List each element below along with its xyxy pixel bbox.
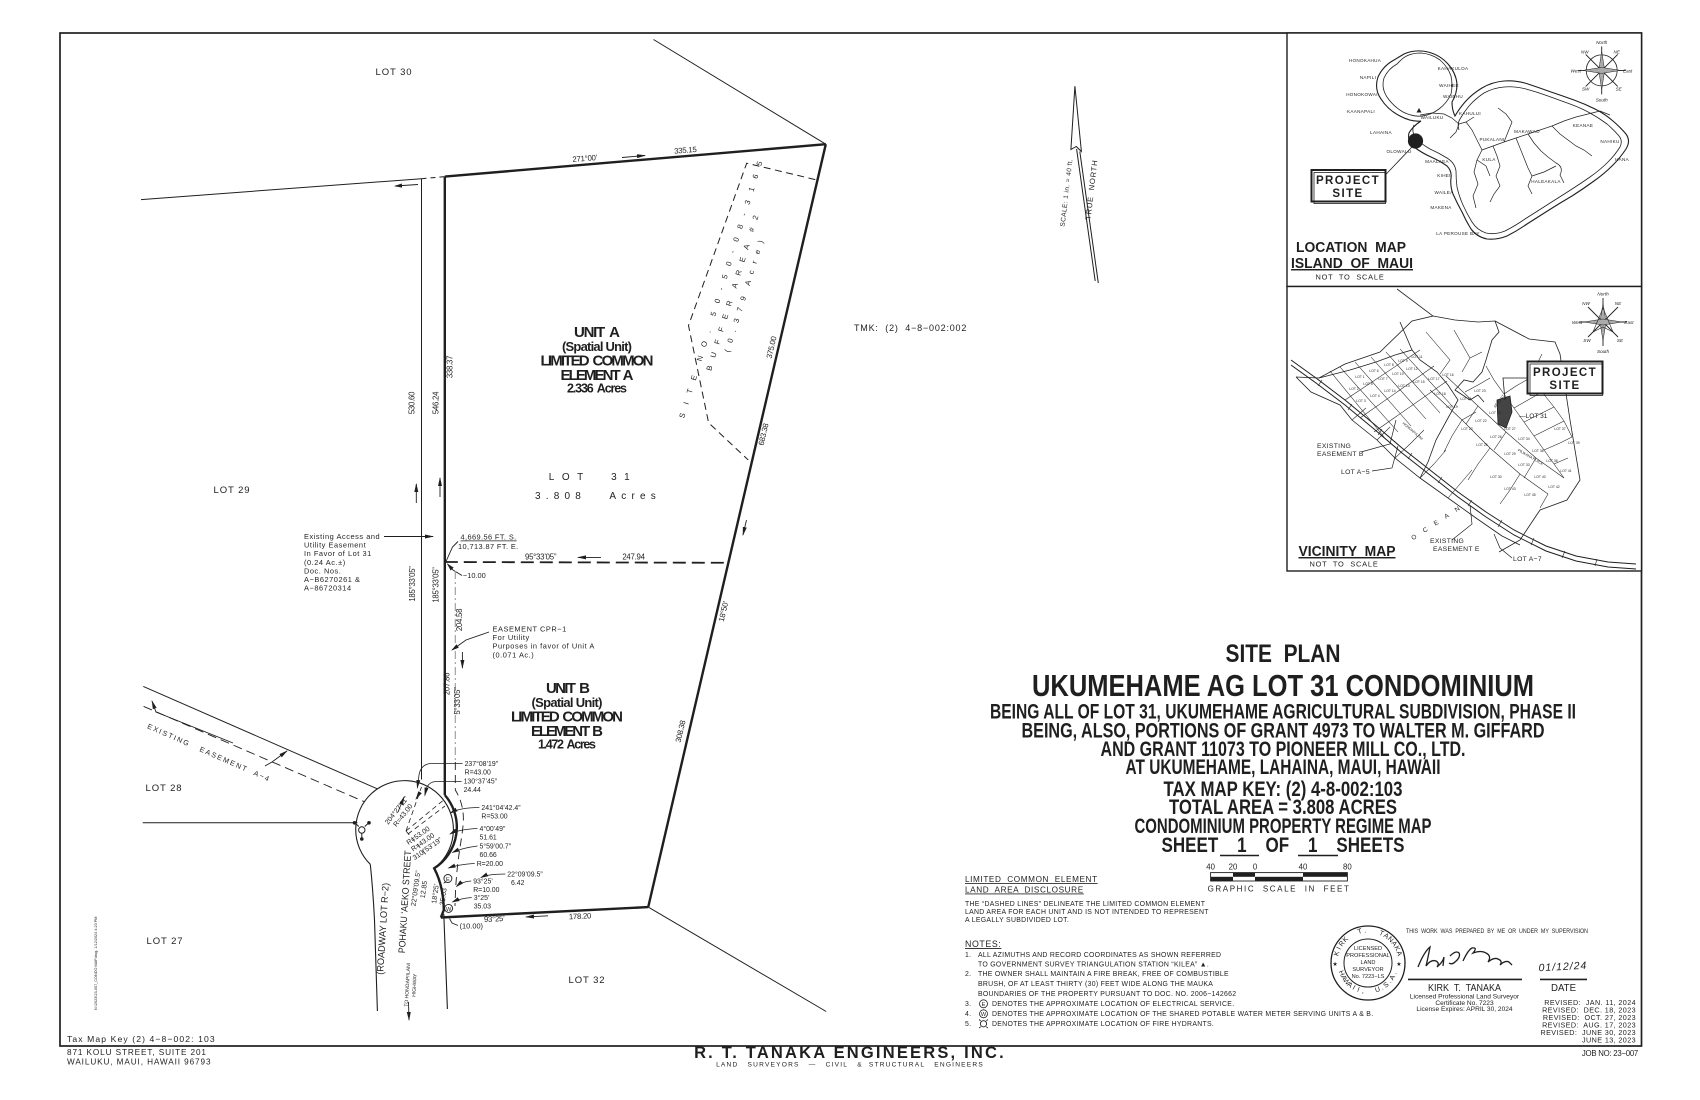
svg-text:271°00’: 271°00’	[572, 153, 598, 164]
svg-text:LOT 12: LOT 12	[1406, 367, 1417, 371]
svg-text:DATE: DATE	[1551, 983, 1576, 994]
svg-text:NAHIKU: NAHIKU	[1600, 139, 1619, 144]
svg-text:LOT 23: LOT 23	[1474, 389, 1485, 393]
svg-text:Tax Map Key (2) 4−8−002: 103: Tax Map Key (2) 4−8−002: 103	[67, 1034, 216, 1044]
svg-text:3°25’: 3°25’	[474, 894, 490, 902]
svg-text:2.336 Acres: 2.336 Acres	[567, 382, 627, 396]
svg-text:E: E	[982, 1002, 986, 1008]
svg-text:LOT 11: LOT 11	[1412, 355, 1423, 359]
svg-text:SITE PLAN: SITE PLAN	[1226, 640, 1341, 668]
svg-text:ISLAND OF MAUI: ISLAND OF MAUI	[1291, 256, 1413, 272]
svg-text:WAILEA: WAILEA	[1435, 190, 1455, 195]
svg-text:North: North	[1596, 40, 1608, 45]
svg-text:207.86: 207.86	[442, 673, 451, 695]
svg-text:LOT 24: LOT 24	[1489, 411, 1500, 415]
svg-text:HANA: HANA	[1615, 157, 1630, 162]
svg-text:A: A	[1395, 950, 1403, 957]
svg-text:LOT 22: LOT 22	[1475, 419, 1486, 423]
svg-text:LOT 45: LOT 45	[1524, 493, 1535, 497]
svg-text:LOCATION MAP: LOCATION MAP	[1296, 240, 1406, 256]
svg-text:LOT A−7: LOT A−7	[1513, 556, 1542, 563]
svg-text:683.38: 683.38	[757, 423, 771, 447]
svg-text:PROJECT: PROJECT	[1533, 367, 1597, 379]
svg-text:546.24: 546.24	[432, 391, 441, 414]
svg-text:A LEGALLY SUBDIVIDED LOT.: A LEGALLY SUBDIVIDED LOT.	[965, 917, 1069, 924]
svg-text:LOT 37: LOT 37	[1554, 427, 1565, 431]
svg-text:DENOTES THE APPROXIMATE LOCATI: DENOTES THE APPROXIMATE LOCATION OF THE …	[992, 1011, 1373, 1018]
svg-text:HIGHWAY: HIGHWAY	[411, 973, 418, 997]
svg-text:40: 40	[1206, 863, 1215, 872]
svg-text:KEANAE: KEANAE	[1573, 123, 1593, 128]
svg-text:LIMITED COMMON ELEMENT: LIMITED COMMON ELEMENT	[965, 875, 1098, 884]
svg-text:LOT 39: LOT 39	[1568, 441, 1579, 445]
svg-text:51.61: 51.61	[480, 835, 497, 842]
svg-text:LOT 17: LOT 17	[1428, 377, 1439, 381]
svg-text:N:\2023\23-007_CONDO MAP.dwg,: N:\2023\23-007_CONDO MAP.dwg, 1/12/2024 …	[94, 917, 98, 1010]
svg-text:LOT 7: LOT 7	[1378, 377, 1387, 381]
svg-text:WAILUKU, MAUI, HAWAII 96793: WAILUKU, MAUI, HAWAII 96793	[67, 1058, 211, 1067]
svg-text:LOT 5: LOT 5	[1363, 382, 1372, 386]
svg-text:LOT 2: LOT 2	[1349, 387, 1358, 391]
svg-text:12.85: 12.85	[420, 880, 429, 898]
svg-text:NW: NW	[1582, 301, 1590, 306]
svg-text:No. 7223−LS: No. 7223−LS	[1352, 974, 1385, 980]
svg-text:EXISTING EASEMENT A−4: EXISTING EASEMENT A−4	[146, 722, 272, 784]
svg-text:5.: 5.	[965, 1021, 971, 1028]
svg-text:MAKENA: MAKENA	[1430, 205, 1452, 210]
svg-text:(10.00): (10.00)	[460, 922, 483, 931]
svg-text:SURVEYOR: SURVEYOR	[1352, 967, 1383, 973]
svg-text:BRUSH, OF AT LEAST THIRTY (30): BRUSH, OF AT LEAST THIRTY (30) FEET WIDE…	[978, 981, 1213, 988]
svg-text:West: West	[1572, 320, 1583, 325]
svg-text:A−86720314: A−86720314	[304, 584, 352, 593]
svg-text:SCALE: 1 in. = 40 ft.: SCALE: 1 in. = 40 ft.	[1060, 158, 1075, 227]
svg-text:AT UKUMEHAME, LAHAINA, MAUI, H: AT UKUMEHAME, LAHAINA, MAUI, HAWAII	[1126, 756, 1441, 779]
svg-text:LOT 8: LOT 8	[1384, 363, 1393, 367]
svg-text:MAKAWAO: MAKAWAO	[1514, 129, 1540, 134]
svg-text:LAHAINA: LAHAINA	[1370, 130, 1392, 135]
svg-text:NOTES:: NOTES:	[965, 939, 1001, 949]
svg-text:PROJECT: PROJECT	[1316, 175, 1380, 187]
svg-text:North: North	[1597, 292, 1609, 297]
svg-text:LOT 20: LOT 20	[1461, 427, 1472, 431]
svg-text:EASEMENT B: EASEMENT B	[1317, 451, 1364, 458]
svg-text:LOT 16: LOT 16	[1442, 373, 1453, 377]
svg-text:W: W	[446, 907, 452, 913]
svg-text:5°59’00.7”: 5°59’00.7”	[480, 843, 512, 851]
svg-text:LOT 36: LOT 36	[1532, 449, 1543, 453]
svg-text:ALL AZIMUTHS AND RECORD COORDI: ALL AZIMUTHS AND RECORD COORDINATES AS S…	[978, 952, 1221, 959]
svg-text:South: South	[1597, 349, 1609, 354]
svg-text:NOT TO SCALE: NOT TO SCALE	[1309, 560, 1378, 569]
svg-text:LOT 13: LOT 13	[1398, 384, 1409, 388]
svg-text:LOT 41: LOT 41	[1560, 469, 1571, 473]
svg-text:EXISTING: EXISTING	[1317, 443, 1351, 450]
svg-text:SITE: SITE	[1332, 188, 1363, 200]
svg-text:01/12/24: 01/12/24	[1538, 960, 1587, 975]
svg-text:LA PEROUSE BAY: LA PEROUSE BAY	[1436, 231, 1479, 236]
svg-text:LOT 30: LOT 30	[376, 67, 413, 78]
svg-text:LOT A−5: LOT A−5	[1341, 469, 1370, 476]
svg-text:24.44: 24.44	[464, 787, 481, 794]
svg-text:★: ★	[1332, 961, 1337, 968]
svg-text:TRUE NORTH: TRUE NORTH	[1084, 159, 1100, 220]
svg-text:SHEET 1 OF 1 SHEET: SHEET 1 OF 1 SHEETS	[1162, 834, 1405, 857]
svg-text:LAND: LAND	[1361, 960, 1376, 966]
svg-text:40: 40	[1299, 863, 1308, 872]
svg-text:247.94: 247.94	[622, 553, 645, 562]
svg-text:22°09’09.5”: 22°09’09.5”	[507, 871, 543, 879]
svg-text:NE: NE	[1614, 49, 1621, 54]
svg-text:SE: SE	[1616, 86, 1623, 91]
svg-text:NAPILI: NAPILI	[1360, 75, 1376, 80]
svg-text:South: South	[1596, 97, 1608, 102]
svg-text:178.20: 178.20	[569, 911, 593, 921]
svg-text:JOB NO: 23−007: JOB NO: 23−007	[1582, 1049, 1638, 1058]
svg-text:(ROADWAY LOT R−2): (ROADWAY LOT R−2)	[375, 883, 392, 975]
svg-text:.: .	[1364, 928, 1367, 935]
svg-text:TMK: (2) 4−8−002:002: TMK: (2) 4−8−002:002	[854, 323, 967, 333]
svg-text:185°33’05”: 185°33’05”	[432, 567, 441, 603]
svg-text:LOT 1: LOT 1	[1355, 375, 1364, 379]
svg-text:S I T E N O . 5 0 - 5 0 - 0: S I T E N O . 5 0 - 5 0 - 0 8 - 3 1 6 5	[677, 157, 765, 420]
svg-text:THIS WORK WAS PREPARED BY: THIS WORK WAS PREPARED BY ME OR UNDER MY…	[1406, 928, 1588, 935]
svg-text:60.66: 60.66	[480, 852, 497, 859]
svg-text:SW: SW	[1583, 338, 1591, 343]
svg-text:KIRK T. TANAKA: KIRK T. TANAKA	[1428, 983, 1501, 994]
svg-text:R=20.00: R=20.00	[477, 861, 503, 868]
svg-text:West: West	[1571, 68, 1582, 73]
svg-text:East: East	[1623, 68, 1633, 73]
svg-text:95°33’05”: 95°33’05”	[525, 553, 557, 562]
svg-text:530.60: 530.60	[408, 391, 417, 414]
svg-text:LOT 6: LOT 6	[1369, 369, 1378, 373]
svg-text:NOT TO SCALE: NOT TO SCALE	[1315, 273, 1384, 282]
svg-text:871 KOLU STREET, SUITE 201: 871 KOLU STREET, SUITE 201	[67, 1048, 207, 1057]
svg-text:R=10.00: R=10.00	[473, 887, 499, 894]
svg-text:LOT 14: LOT 14	[1384, 389, 1395, 393]
svg-text:EASEMENT E: EASEMENT E	[1433, 546, 1480, 553]
svg-text:LOT 27: LOT 27	[1504, 427, 1515, 431]
svg-text:80: 80	[1343, 863, 1352, 872]
svg-text:SITE: SITE	[1549, 380, 1580, 392]
svg-text:East: East	[1624, 320, 1634, 325]
svg-text:HONOKAHUA: HONOKAHUA	[1349, 58, 1382, 63]
svg-text:R. T. TANAKA ENGINEERS, INC.: R. T. TANAKA ENGINEERS, INC.	[694, 1044, 1006, 1062]
svg-text:LOT 10: LOT 10	[1392, 372, 1403, 376]
svg-text:241°04’42.4”: 241°04’42.4”	[481, 804, 521, 812]
svg-text:WAILUKU: WAILUKU	[1421, 115, 1444, 120]
svg-text:UKUMEHAME AG LOT 31 CONDOMINIU: UKUMEHAME AG LOT 31 CONDOMINIUM	[1032, 668, 1534, 703]
svg-text:LAND AREA DISCLOSURE: LAND AREA DISCLOSURE	[965, 886, 1084, 895]
svg-text:LOT 29: LOT 29	[214, 485, 251, 496]
svg-text:NE: NE	[1615, 301, 1622, 306]
svg-text:LOT 26: LOT 26	[1490, 435, 1501, 439]
svg-text:LOT 30: LOT 30	[1490, 475, 1501, 479]
svg-text:35.03: 35.03	[439, 888, 448, 906]
svg-text:,: ,	[1361, 988, 1364, 995]
svg-text:338.37: 338.37	[445, 356, 454, 378]
svg-text:PROFESSIONAL: PROFESSIONAL	[1346, 953, 1390, 959]
svg-text:35.03: 35.03	[474, 904, 491, 911]
svg-text:2.: 2.	[965, 971, 971, 978]
svg-text:VICINITY MAP: VICINITY MAP	[1299, 544, 1396, 560]
svg-text:SE: SE	[1617, 338, 1624, 343]
svg-text:I: I	[1356, 987, 1360, 994]
svg-text:LOT 27: LOT 27	[147, 936, 184, 947]
svg-text:LOT 31: LOT 31	[549, 472, 637, 483]
svg-text:LOT 42: LOT 42	[1548, 485, 1559, 489]
svg-text:.: .	[1391, 971, 1398, 975]
svg-text:LOT 34: LOT 34	[1518, 437, 1529, 441]
svg-text:LOT 33: LOT 33	[1518, 463, 1529, 467]
svg-text:—LOT 31: —LOT 31	[1519, 413, 1548, 420]
svg-text:HALEAKALA: HALEAKALA	[1531, 179, 1561, 184]
svg-text:LOT 43: LOT 43	[1504, 487, 1515, 491]
svg-text:DENOTES THE APPROXIMATE LOCATI: DENOTES THE APPROXIMATE LOCATION OF FIRE…	[992, 1021, 1214, 1028]
svg-text:1.472 Acres: 1.472 Acres	[538, 738, 596, 752]
svg-text:NW: NW	[1581, 49, 1589, 54]
svg-text:BOUNDARIES OF THE PROPERTY PUR: BOUNDARIES OF THE PROPERTY PURSUANT TO D…	[978, 991, 1236, 998]
svg-text:4.: 4.	[965, 1011, 971, 1018]
svg-text:GRAPHIC SCALE IN FEET: GRAPHIC SCALE IN FEET	[1208, 885, 1351, 894]
svg-text:LOT 3: LOT 3	[1356, 399, 1365, 403]
svg-text:LOT 9: LOT 9	[1398, 359, 1407, 363]
svg-text:PUKALANI: PUKALANI	[1479, 137, 1504, 142]
svg-text:KAHULUI: KAHULUI	[1459, 111, 1481, 116]
svg-text:E: E	[446, 877, 450, 883]
svg-text:LOT 18: LOT 18	[1434, 392, 1445, 396]
svg-text:LICENSED: LICENSED	[1354, 946, 1382, 952]
svg-text:10,713.87 FT. E.: 10,713.87 FT. E.	[458, 542, 519, 551]
svg-text:T: T	[1357, 928, 1364, 936]
svg-text:LOT 25: LOT 25	[1476, 443, 1487, 447]
svg-text:EXISTING: EXISTING	[1430, 538, 1464, 545]
svg-text:LAND AREA FOR EACH UNIT AND IS: LAND AREA FOR EACH UNIT AND IS NOT INTEN…	[965, 909, 1209, 916]
svg-text:LOT 15: LOT 15	[1413, 380, 1424, 384]
svg-text:LOT 4: LOT 4	[1370, 394, 1379, 398]
svg-text:4,669.56 FT. S.: 4,669.56 FT. S.	[461, 533, 517, 542]
svg-text:THE “DASHED LINES” DELINEATE T: THE “DASHED LINES” DELINEATE THE LIMITED…	[965, 901, 1206, 908]
svg-text:3.808 Acres: 3.808 Acres	[535, 491, 661, 502]
svg-text:LOT 32: LOT 32	[569, 975, 606, 986]
svg-text:185°33’05”: 185°33’05”	[408, 566, 417, 602]
svg-text:93°25’: 93°25’	[484, 914, 506, 924]
svg-text:WAIHEE: WAIHEE	[1439, 83, 1459, 88]
svg-text:6.42: 6.42	[511, 880, 525, 887]
svg-text:MAALAEA: MAALAEA	[1425, 159, 1449, 164]
svg-text:License Expires: APRIL 30, 202: License Expires: APRIL 30, 2024	[1416, 1006, 1512, 1013]
svg-text:0: 0	[1253, 863, 1258, 872]
svg-text:JUNE 13, 2023: JUNE 13, 2023	[1582, 1036, 1636, 1045]
svg-text:THE OWNER SHALL MAINTAIN A FIR: THE OWNER SHALL MAINTAIN A FIRE BREAK, F…	[978, 971, 1229, 978]
svg-text:5°33’05”: 5°33’05”	[453, 687, 462, 715]
svg-text:KIHEI: KIHEI	[1437, 173, 1451, 178]
svg-text:20: 20	[1229, 863, 1238, 872]
svg-text:308.38: 308.38	[674, 720, 688, 744]
svg-text:SW: SW	[1582, 86, 1590, 91]
svg-text:HONOKOWAI: HONOKOWAI	[1346, 92, 1378, 97]
svg-text:LAND SURVEYORS — CIVIL: LAND SURVEYORS — CIVIL & STRUCTURAL ENGI…	[716, 1062, 984, 1069]
svg-text:KAHAKULOA: KAHAKULOA	[1438, 66, 1469, 71]
svg-text:(0.071 Ac.): (0.071 Ac.)	[493, 650, 535, 659]
svg-text:LOT 19: LOT 19	[1446, 405, 1457, 409]
svg-text:★: ★	[1396, 961, 1401, 968]
svg-text:130°37’45”: 130°37’45”	[464, 778, 498, 786]
svg-text:−10.00: −10.00	[463, 571, 486, 580]
svg-text:DENOTES THE APPROXIMATE LOCATI: DENOTES THE APPROXIMATE LOCATION OF ELEC…	[992, 1001, 1234, 1008]
svg-text:237°08’19”: 237°08’19”	[465, 760, 499, 768]
svg-text:TO GOVERNMENT SURVEY TRIANGULA: TO GOVERNMENT SURVEY TRIANGULATION STATI…	[978, 962, 1209, 969]
svg-text:LOT 40: LOT 40	[1534, 475, 1545, 479]
svg-text:1.: 1.	[965, 952, 971, 959]
svg-text:LOT 28: LOT 28	[146, 783, 183, 794]
svg-text:93°25’: 93°25’	[473, 878, 493, 886]
svg-text:4°00’49”: 4°00’49”	[480, 825, 506, 833]
svg-text:LOT 21: LOT 21	[1460, 397, 1471, 401]
svg-text:204.58: 204.58	[455, 609, 464, 631]
svg-text:KAANAPALI: KAANAPALI	[1347, 109, 1375, 114]
svg-text:W: W	[981, 1012, 987, 1018]
svg-text:OLOWALU: OLOWALU	[1387, 149, 1412, 154]
svg-text:R=53.00: R=53.00	[481, 814, 507, 821]
svg-text:LOT 29: LOT 29	[1504, 452, 1515, 456]
svg-text:LOT 38: LOT 38	[1546, 459, 1557, 463]
svg-text:335.15: 335.15	[674, 145, 698, 156]
svg-text:WAIEHU: WAIEHU	[1443, 94, 1463, 99]
svg-text:R=43.00: R=43.00	[465, 770, 491, 777]
svg-text:KULA: KULA	[1482, 157, 1496, 162]
svg-text:3.: 3.	[965, 1001, 971, 1008]
svg-text:TO HONOAPIILANI: TO HONOAPIILANI	[404, 963, 412, 1007]
